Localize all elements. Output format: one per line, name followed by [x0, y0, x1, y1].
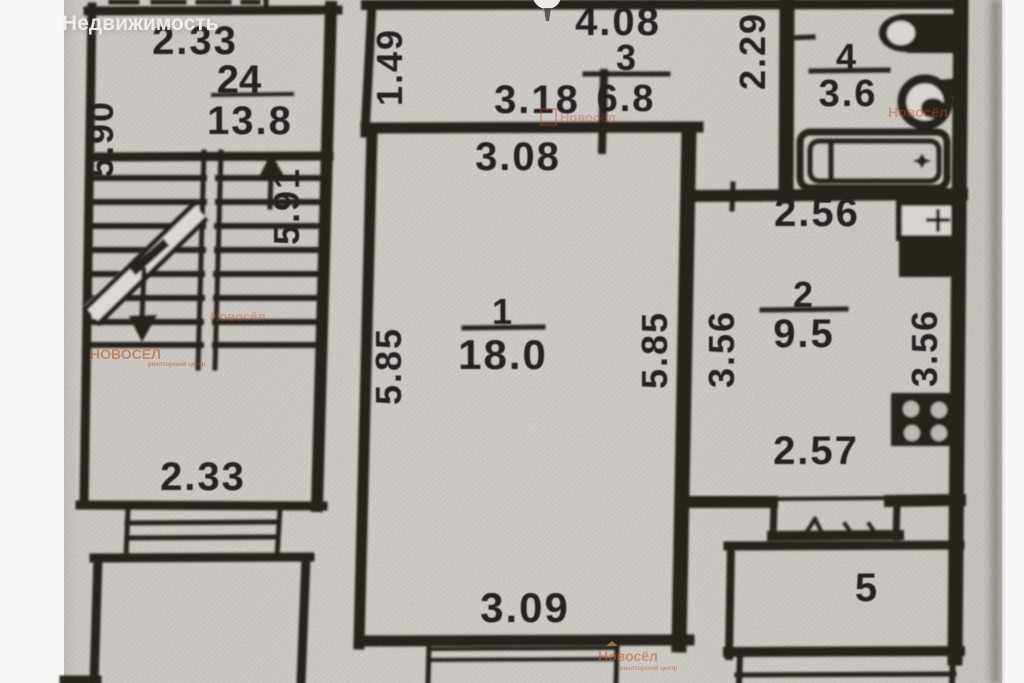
svg-text:5: 5	[855, 566, 877, 610]
svg-text:2.57: 2.57	[773, 429, 859, 473]
svg-text:2.29: 2.29	[732, 12, 773, 90]
svg-text:5.85: 5.85	[634, 311, 675, 389]
svg-text:3.09: 3.09	[480, 584, 570, 631]
svg-text:3.08: 3.08	[475, 135, 561, 179]
svg-text:Новосёл: Новосёл	[560, 110, 616, 125]
svg-text:18.0: 18.0	[458, 331, 548, 378]
svg-text:3.6: 3.6	[819, 73, 878, 115]
svg-text:1: 1	[492, 291, 512, 332]
svg-text:риелторский центр: риелторский центр	[148, 361, 206, 368]
svg-text:НОВОСЁЛ: НОВОСЁЛ	[90, 346, 161, 362]
svg-text:Новосёл: Новосёл	[210, 309, 266, 324]
svg-text:2: 2	[793, 274, 813, 315]
svg-text:3.56: 3.56	[701, 310, 742, 388]
svg-text:3: 3	[616, 37, 636, 78]
svg-text:3.56: 3.56	[904, 309, 945, 387]
svg-text:2.56: 2.56	[774, 191, 860, 235]
svg-text:Недвижимость: Недвижимость	[62, 12, 219, 35]
svg-text:4: 4	[836, 36, 856, 77]
svg-text:1.49: 1.49	[369, 28, 410, 106]
svg-text:24: 24	[217, 58, 262, 102]
svg-text:риелторский центр: риелторский центр	[620, 665, 678, 672]
svg-text:Новосёл: Новосёл	[888, 104, 948, 120]
svg-text:9.5: 9.5	[773, 312, 835, 356]
svg-text:Новосёл: Новосёл	[598, 648, 658, 664]
svg-text:5.85: 5.85	[368, 327, 409, 405]
svg-text:2.33: 2.33	[160, 455, 246, 499]
svg-text:5.91: 5.91	[266, 167, 307, 245]
svg-text:5.90: 5.90	[80, 100, 121, 178]
svg-text:13.8: 13.8	[207, 99, 293, 143]
